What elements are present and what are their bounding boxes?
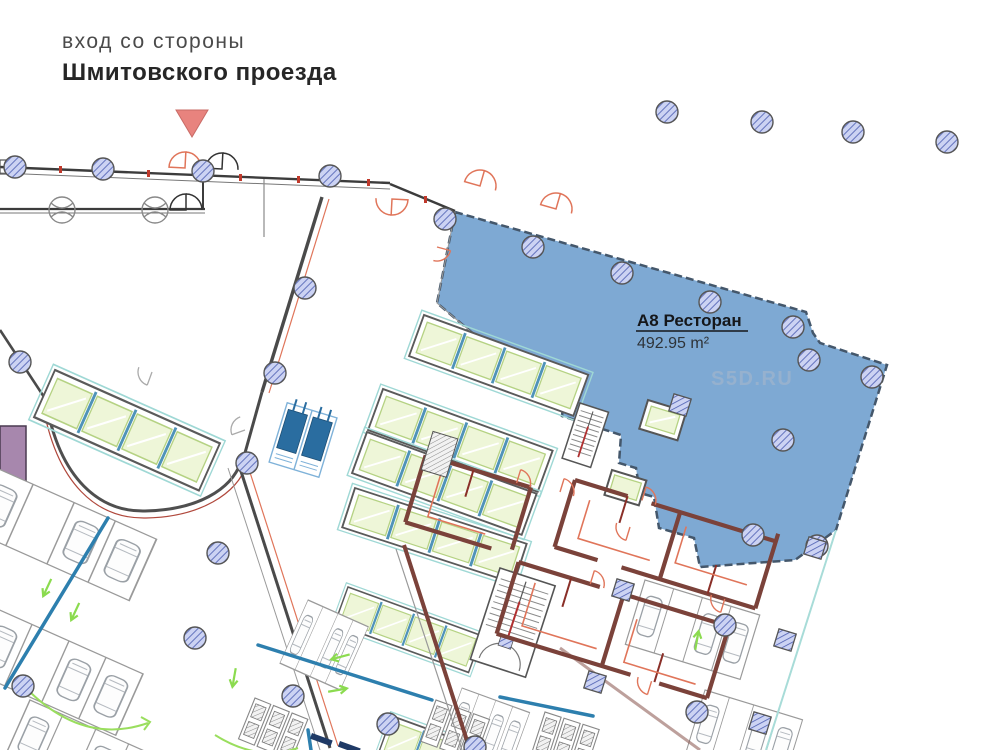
column-icon [9, 351, 31, 373]
floor-plan-drawing: вход со стороны Шмитовского проезда А8 Р… [0, 0, 1000, 750]
column-icon [207, 542, 229, 564]
column-icon [264, 362, 286, 384]
motorcycle-stalls [531, 712, 599, 750]
unit-area: 492.95 m² [637, 335, 710, 352]
column-icon [236, 452, 258, 474]
unit-label: А8 Ресторан [637, 311, 742, 330]
parking-stall-band [625, 580, 759, 679]
column-icon [751, 111, 773, 133]
column-icon [282, 685, 304, 707]
column-icon [522, 236, 544, 258]
parking-stall-band [0, 608, 143, 735]
square-column-icon [584, 671, 606, 693]
column-icon [842, 121, 864, 143]
column-icon [772, 429, 794, 451]
column-icon [798, 349, 820, 371]
column-icon [699, 291, 721, 313]
column-icon [936, 131, 958, 153]
column-icon [656, 101, 678, 123]
column-icon [714, 614, 736, 636]
column-icon [782, 316, 804, 338]
floor-plan-page: вход со стороны Шмитовского проезда А8 Р… [0, 0, 1000, 750]
column-icon [377, 713, 399, 735]
column-icon [92, 158, 114, 180]
column-icon [686, 701, 708, 723]
entrance-caption-line1: вход со стороны [62, 30, 245, 53]
column-icon [611, 262, 633, 284]
door-icon [375, 198, 408, 216]
column-icon [4, 156, 26, 178]
unit-row [29, 364, 225, 496]
door-icon [227, 417, 245, 435]
parking-stall-band [0, 466, 156, 601]
column-icon [184, 627, 206, 649]
column-icon [294, 277, 316, 299]
column-icon [12, 675, 34, 697]
entrance-marker-triangle-icon [176, 110, 208, 137]
column-icon [742, 524, 764, 546]
door-icon [170, 194, 202, 210]
column-icon [192, 160, 214, 182]
entrance-caption-line2: Шмитовского проезда [62, 59, 337, 86]
door-icon [134, 367, 152, 385]
square-column-icon [774, 629, 796, 651]
column-icon [434, 208, 456, 230]
column-icon [861, 366, 883, 388]
door-icon [465, 166, 500, 190]
door-icon [613, 523, 630, 540]
top-walls [0, 160, 455, 237]
column-icon [319, 165, 341, 187]
entrance-annotation: вход со стороны Шмитовского проезда [62, 30, 337, 137]
escalator-icon [269, 397, 339, 477]
door-icon [541, 189, 576, 213]
watermark: S5D.RU [711, 368, 793, 390]
